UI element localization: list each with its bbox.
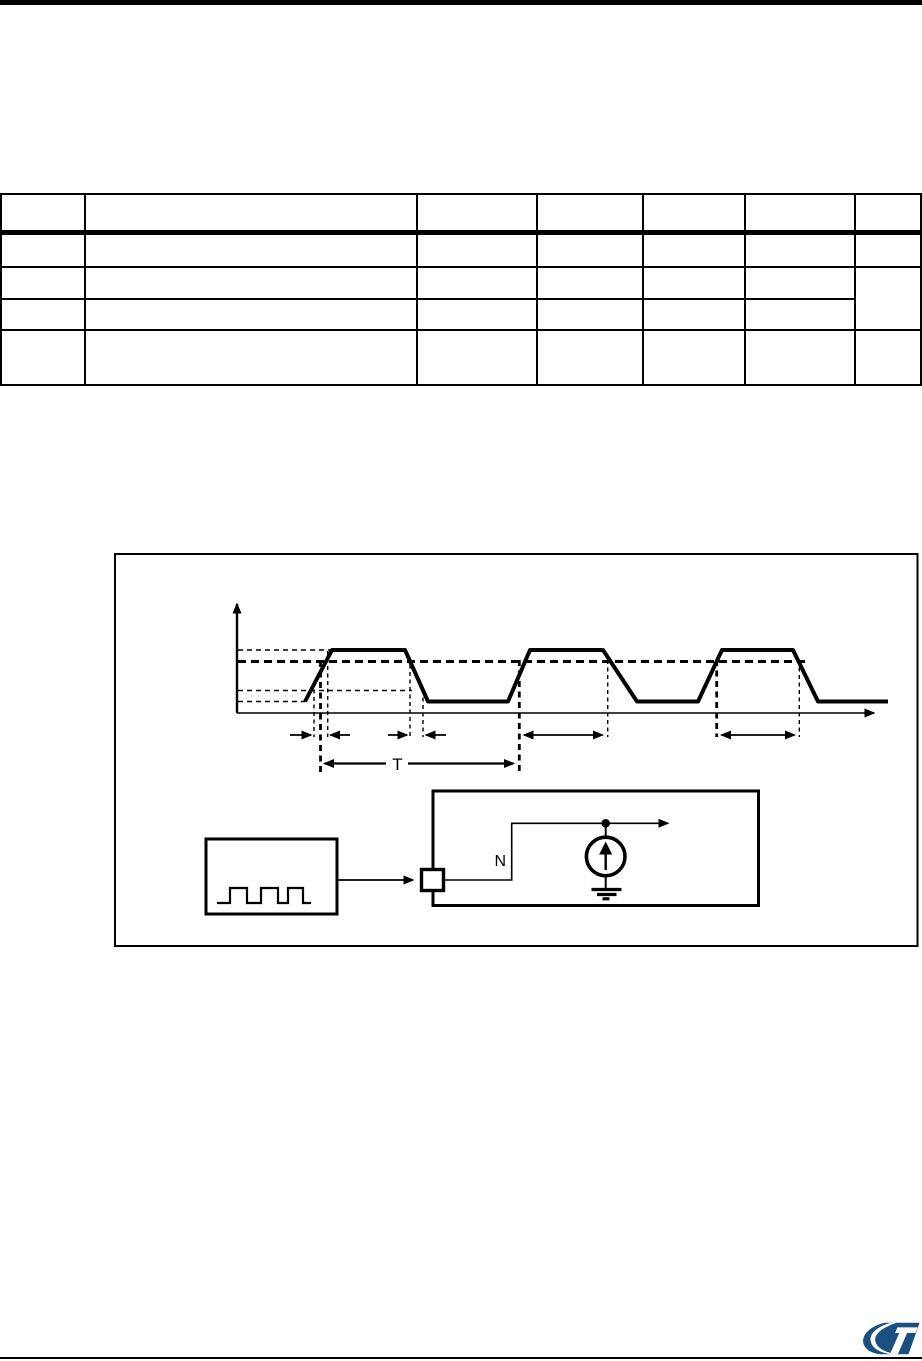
table-cell — [85, 267, 417, 299]
table-header-cell — [1, 194, 85, 233]
table-cell — [643, 299, 745, 330]
st-logo-svg — [860, 1320, 920, 1357]
table-cell — [417, 233, 537, 268]
table-cell — [417, 299, 537, 330]
table-cell — [745, 233, 855, 268]
table-cell — [643, 330, 745, 385]
table-cell — [537, 299, 643, 330]
table-row — [1, 233, 921, 268]
table-cell — [537, 233, 643, 268]
table-cell — [643, 267, 745, 299]
table-header-cell — [855, 194, 921, 233]
table-header-cell — [537, 194, 643, 233]
table-cell — [1, 299, 85, 330]
top-rule — [0, 0, 922, 5]
table-cell — [537, 330, 643, 385]
table-header-cell — [85, 194, 417, 233]
table-cell — [85, 233, 417, 268]
table-cell — [855, 330, 921, 385]
bottom-rule — [0, 1357, 922, 1359]
table-cell — [855, 233, 921, 268]
st-logo — [860, 1320, 920, 1357]
table-cell — [643, 233, 745, 268]
pin-square — [422, 870, 444, 891]
table-header-cell — [417, 194, 537, 233]
table-cell — [745, 330, 855, 385]
table-cell — [85, 330, 417, 385]
table-cell — [417, 267, 537, 299]
table-cell — [1, 267, 85, 299]
table-cell — [1, 233, 85, 268]
table-cell — [537, 267, 643, 299]
table-cell — [85, 299, 417, 330]
table-cell-merged — [855, 267, 921, 330]
document-page: T N — [0, 0, 922, 1361]
table-row — [1, 299, 921, 330]
table-cell — [745, 299, 855, 330]
table-cell — [745, 267, 855, 299]
period-label: T — [392, 755, 402, 774]
table-cell — [417, 330, 537, 385]
table-header-cell — [745, 194, 855, 233]
timing-figure-svg: T N — [114, 553, 919, 947]
table-row — [1, 330, 921, 385]
data-table — [0, 193, 922, 386]
table-row — [1, 267, 921, 299]
node-label: N — [494, 853, 506, 870]
table-header-row — [1, 194, 921, 233]
table-header-cell — [643, 194, 745, 233]
timing-figure: T N — [114, 553, 919, 947]
table-cell — [1, 330, 85, 385]
